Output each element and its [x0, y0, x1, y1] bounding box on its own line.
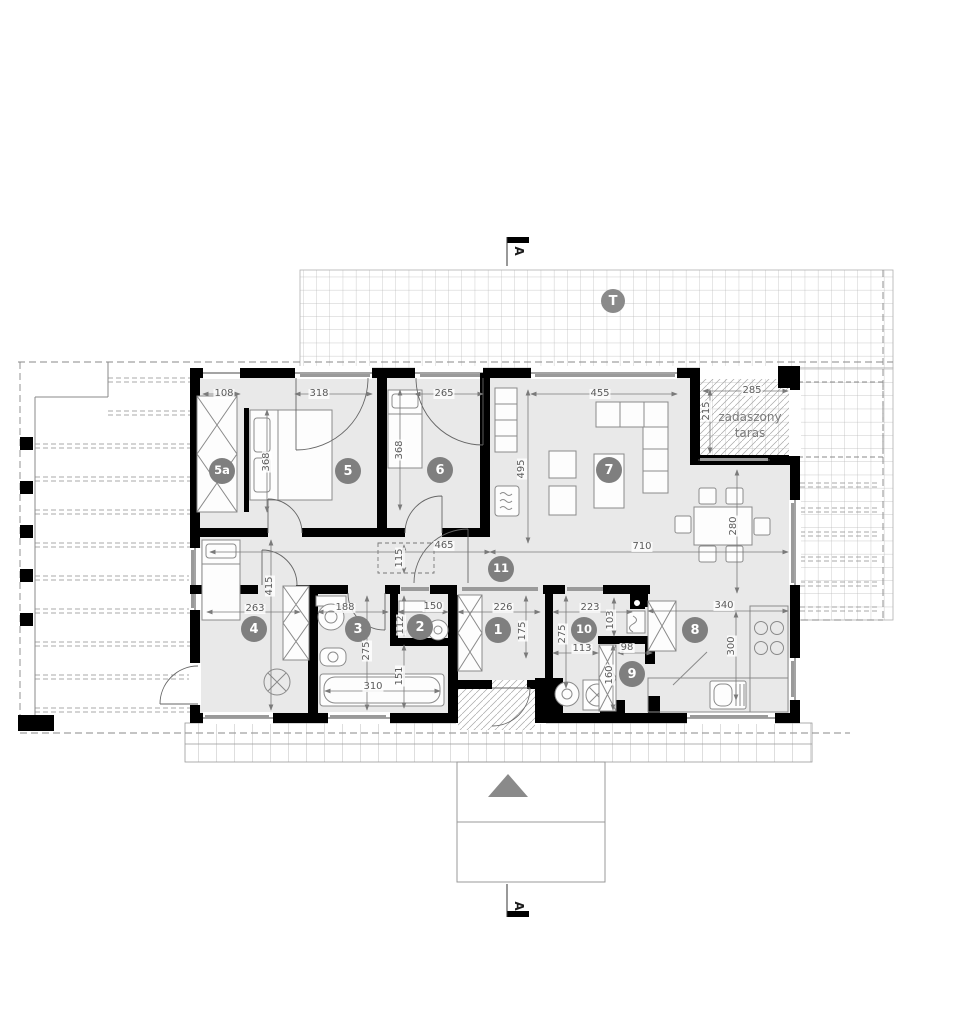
room-badge-11: 11: [488, 556, 514, 582]
dim-terrace-width: 285: [741, 386, 762, 396]
dim-corridor-width: 465: [433, 541, 454, 551]
dim-bedroom5-door: 318: [308, 389, 329, 399]
dim-pantry-width: 98: [620, 643, 635, 653]
room-badge-8: 8: [682, 617, 708, 643]
dim-bedroom4-depth: 415: [265, 575, 275, 596]
room-badge-3: 3: [345, 616, 371, 642]
dim-hall-width: 226: [492, 603, 513, 613]
dim-living-window: 455: [589, 389, 610, 399]
dim-bedroom5-length: 368: [262, 451, 272, 472]
dim-hall-depth: 175: [518, 620, 528, 641]
dim-bathtub-length: 310: [362, 682, 383, 692]
dim-utility-width: 223: [579, 603, 600, 613]
dim-bathroom-depth: 275: [362, 640, 372, 661]
dim-living-zone-width: 710: [631, 542, 652, 552]
floor-plan-drawing: [0, 0, 956, 1014]
floor-plan-page: A A T zadaszony taras 5a 5 6 7 11 4 3 2 …: [0, 0, 956, 1014]
room-badge-4: 4: [241, 616, 267, 642]
dim-dining-depth: 280: [729, 515, 739, 536]
dim-bedroom6-window: 265: [433, 389, 454, 399]
room-badge-5: 5: [335, 458, 361, 484]
section-marker-bottom-label: A: [512, 901, 526, 910]
dim-utility-depth: 275: [558, 623, 568, 644]
dim-living-depth: 495: [517, 458, 527, 479]
dim-utility-lower-width: 113: [571, 644, 592, 654]
dim-bathroom-width: 188: [334, 603, 355, 613]
dim-kitchen-depth: 300: [727, 635, 737, 656]
entrance-porch: [448, 678, 563, 730]
dim-bathtub-nook-depth: 151: [395, 665, 405, 686]
room-badge-2: 2: [407, 614, 433, 640]
dim-utility-right-depth: 103: [606, 609, 616, 630]
dim-closet-window: 108: [213, 389, 234, 399]
dim-terrace-depth: 215: [702, 400, 712, 421]
covered-terrace-label: zadaszony taras: [718, 409, 781, 441]
room-badge-5a: 5a: [209, 458, 235, 484]
dim-bedroom6-length: 368: [395, 439, 405, 460]
room-badge-6: 6: [427, 457, 453, 483]
covered-terrace-label-line2: taras: [718, 425, 781, 441]
dim-corridor-recess: 115: [395, 547, 405, 568]
room-badge-1: 1: [485, 617, 511, 643]
section-marker-top-label: A: [512, 246, 526, 255]
room-badge-10: 10: [571, 617, 597, 643]
dim-bedroom4-width: 263: [244, 604, 265, 614]
dim-wc-width: 150: [422, 602, 443, 612]
dim-pantry-depth: 160: [605, 664, 615, 685]
room-badge-7: 7: [596, 457, 622, 483]
room-badge-9: 9: [619, 661, 645, 687]
dim-wc-depth: 112: [396, 614, 406, 635]
covered-terrace-label-line1: zadaszony: [718, 409, 781, 425]
terrace-badge: T: [601, 289, 625, 313]
dim-kitchen-width: 340: [713, 601, 734, 611]
terrace-post: [778, 366, 800, 388]
